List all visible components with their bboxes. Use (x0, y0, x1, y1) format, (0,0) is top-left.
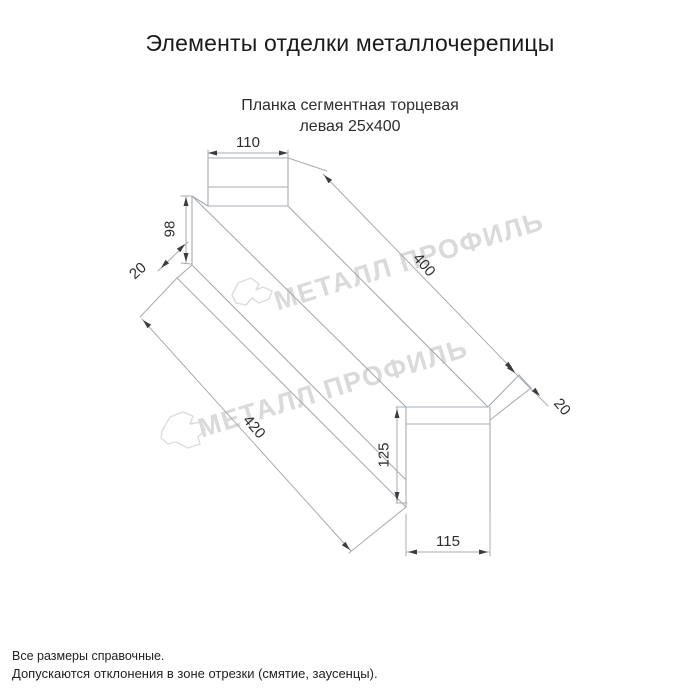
dimension-125: 125 (376, 407, 408, 503)
profile-outline (177, 158, 531, 512)
dim-label-115: 115 (436, 533, 460, 550)
dim-label-110: 110 (236, 134, 260, 151)
dimension-110: 110 (208, 134, 288, 159)
end-fold-edge-2 (490, 388, 531, 420)
footer-note-1: Все размеры справочные. (12, 648, 378, 665)
footer-notes: Все размеры справочные. Допускаются откл… (12, 648, 378, 682)
front-hem-edge (177, 265, 192, 278)
dimension-20-end: 20 (507, 365, 574, 419)
dim-label-20-end: 20 (550, 395, 574, 419)
dimension-115: 115 (406, 512, 490, 556)
dim-label-20-front: 20 (126, 259, 150, 283)
ridge-top-left (192, 196, 406, 407)
watermark-text: МЕТАЛЛ ПРОФИЛЬ (271, 206, 548, 317)
dim-label-98: 98 (162, 221, 179, 238)
dim-label-125: 125 (376, 442, 393, 467)
metal-profile-logo-icon (232, 278, 272, 305)
watermark-upper: МЕТАЛЛ ПРОФИЛЬ (232, 206, 547, 317)
footer-note-2: Допускаются отклонения в зоне отрезки (с… (12, 665, 378, 682)
end-fold-edge-1 (488, 375, 519, 407)
technical-drawing: МЕТАЛЛ ПРОФИЛЬ МЕТАЛЛ ПРОФИЛЬ (0, 0, 700, 700)
end-fold-cap (519, 375, 531, 388)
near-end-cap (208, 158, 288, 206)
catalog-page: Элементы отделки металлочерепицы Планка … (0, 0, 700, 700)
